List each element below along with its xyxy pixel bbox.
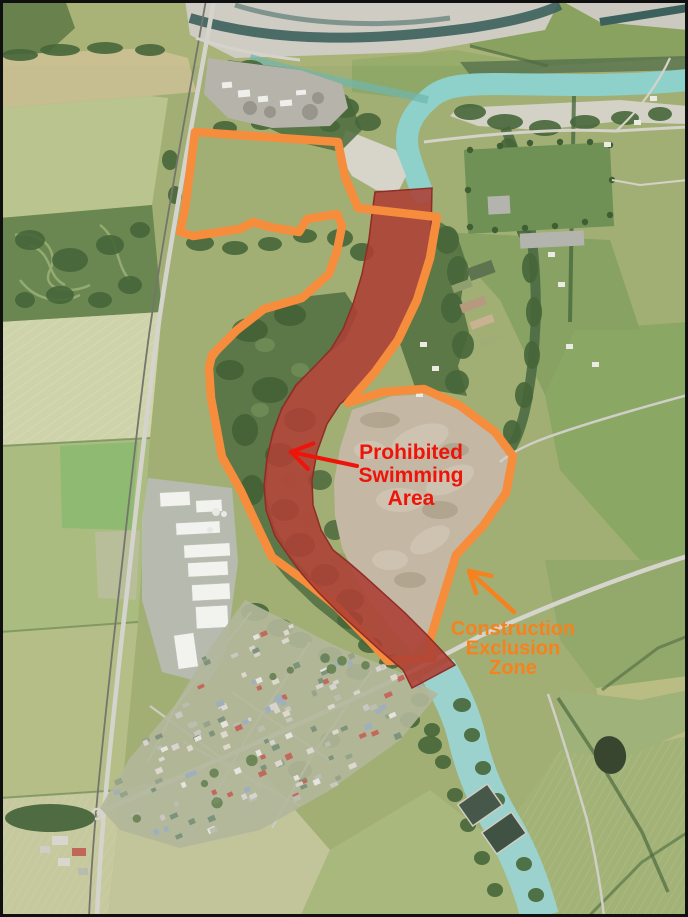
prohibited-label-line-2: Swimming [358, 464, 463, 487]
prohibited-label-line-3: Area [388, 487, 435, 510]
aerial-map-screenshot: Prohibited Swimming Area Construction Ex… [0, 0, 688, 917]
prohibited-label-line-1: Prohibited [359, 441, 463, 464]
exclusion-label-line-3: Zone [489, 657, 537, 679]
aerial-map: Prohibited Swimming Area Construction Ex… [0, 0, 688, 917]
